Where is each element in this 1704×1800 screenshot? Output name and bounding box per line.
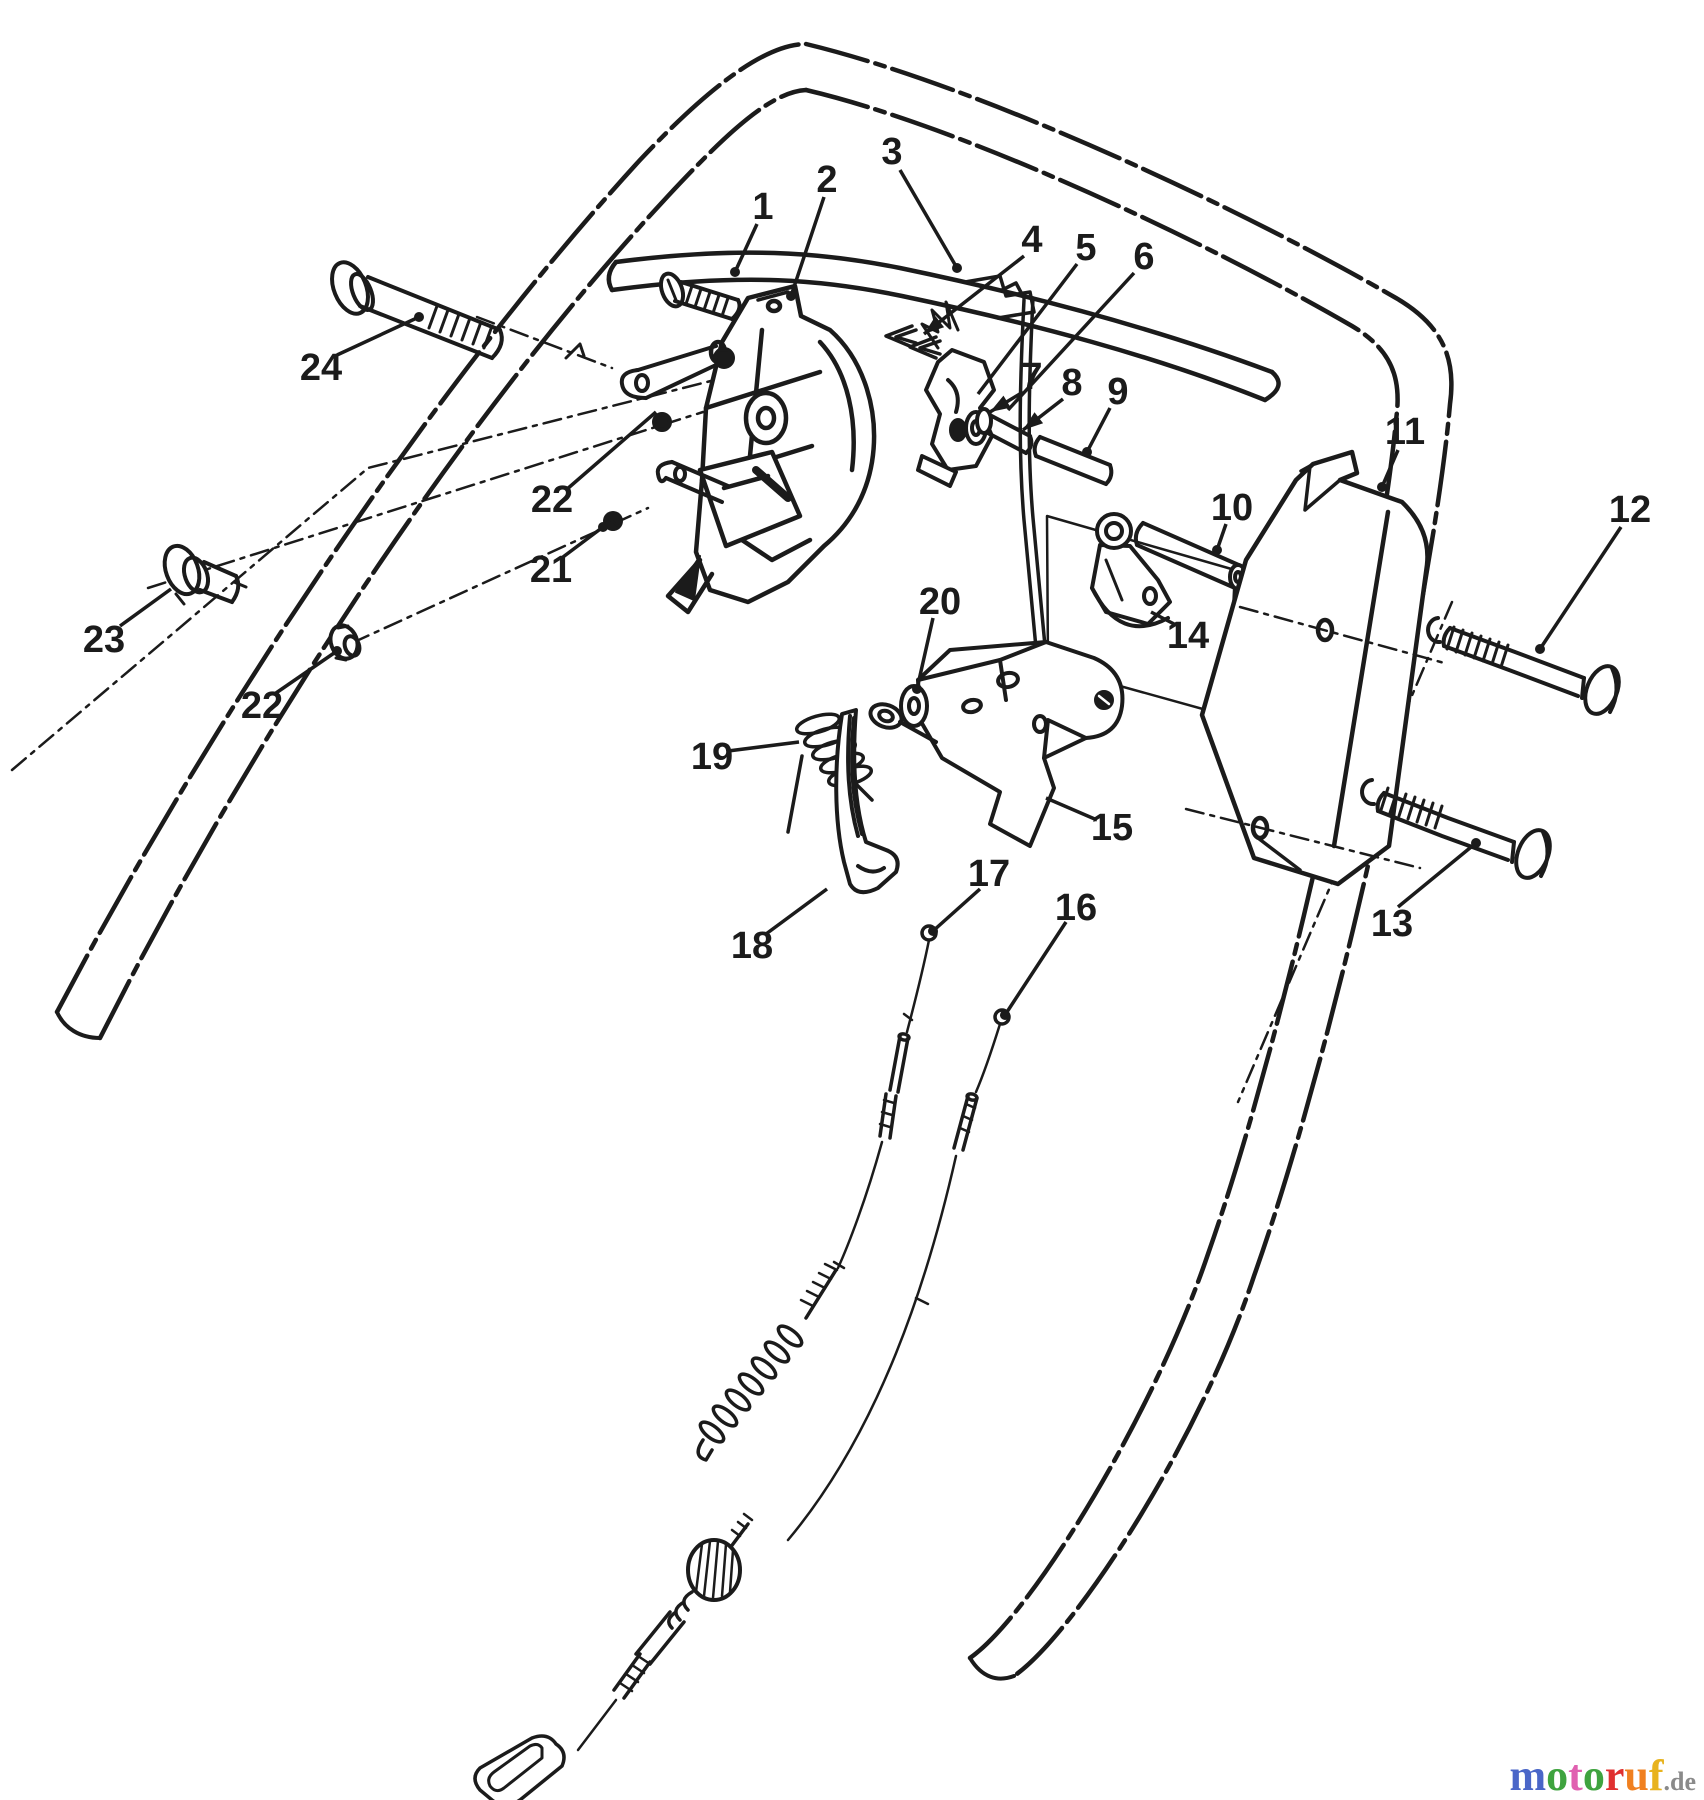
leader-line xyxy=(1398,843,1476,907)
watermark-letter: u xyxy=(1624,1751,1648,1800)
brake-link-rod xyxy=(1002,283,1054,660)
watermark-letter: t xyxy=(1568,1751,1583,1800)
leader-dot xyxy=(730,267,740,277)
part-number-text: 7 xyxy=(1021,356,1042,398)
part-number-text: 9 xyxy=(1107,371,1128,413)
part-label-22b: 22 xyxy=(241,646,342,727)
bushing-part23 xyxy=(158,541,246,604)
handle-tube-ends xyxy=(57,344,1014,1679)
watermark-letter: o xyxy=(1583,1751,1605,1800)
part-label-15: 15 xyxy=(1046,798,1133,849)
part-number-text: 8 xyxy=(1061,362,1082,404)
leader-dot xyxy=(928,926,938,936)
part-label-18: 18 xyxy=(731,889,827,967)
watermark-suffix: .de xyxy=(1664,1767,1697,1796)
part-label-12: 12 xyxy=(1535,489,1651,654)
part-label-11: 11 xyxy=(1377,411,1425,492)
leader-line xyxy=(735,224,757,272)
part-number-text: 6 xyxy=(1133,236,1154,278)
leader-dot xyxy=(1082,447,1092,457)
part-label-22a: 22 xyxy=(531,412,656,521)
watermark-letter: o xyxy=(1546,1751,1568,1800)
part-label-1: 1 xyxy=(730,186,774,277)
part-number-text: 23 xyxy=(83,619,125,661)
part-label-16: 16 xyxy=(1000,887,1097,1020)
throttle-cable-part16 xyxy=(475,1010,1009,1800)
part-number-text: 1 xyxy=(752,186,773,228)
leader-line xyxy=(276,651,337,693)
part-number-text: 24 xyxy=(300,347,342,389)
leader-dot xyxy=(414,312,424,322)
part-number-text: 22 xyxy=(241,685,283,727)
leader-dot xyxy=(1535,644,1545,654)
handle-tube-phantom xyxy=(57,44,1451,1676)
leader-line xyxy=(900,170,957,268)
brake-cable-part17 xyxy=(697,926,936,1460)
control-housing-part2 xyxy=(668,286,874,612)
part-number-text: 18 xyxy=(731,925,773,967)
part-number-text: 13 xyxy=(1371,903,1413,945)
part-number-text: 17 xyxy=(968,853,1010,895)
part-label-17: 17 xyxy=(928,853,1010,936)
part-label-3: 3 xyxy=(881,131,962,273)
leader-dot xyxy=(952,263,962,273)
part-number-text: 19 xyxy=(691,736,733,778)
leader-dot xyxy=(786,291,796,301)
part-number-text: 20 xyxy=(919,581,961,623)
part-number-text: 14 xyxy=(1167,615,1209,657)
part-number-text: 2 xyxy=(816,159,837,201)
part-number-text: 21 xyxy=(530,549,572,591)
carriage-bolt-part24 xyxy=(325,257,502,358)
parts-diagram-page: 1234567891011121314151617181920212222232… xyxy=(0,0,1704,1800)
leader-dot xyxy=(1471,838,1481,848)
leader-line xyxy=(766,889,827,934)
leader-line xyxy=(1005,922,1066,1015)
leader-line xyxy=(337,317,419,355)
leader-line xyxy=(1046,798,1097,820)
part-label-21: 21 xyxy=(530,522,608,591)
watermark-letter: f xyxy=(1649,1751,1664,1800)
part-number-text: 15 xyxy=(1091,807,1133,849)
part-label-10: 10 xyxy=(1211,487,1253,555)
leader-line xyxy=(728,742,799,751)
leader-dot xyxy=(1212,545,1222,555)
part-number-text: 11 xyxy=(1385,411,1425,453)
leader-line xyxy=(1087,408,1110,452)
part-label-23: 23 xyxy=(83,589,171,661)
leader-line xyxy=(933,889,980,931)
bolt-part12 xyxy=(1428,618,1625,719)
watermark-letter: r xyxy=(1605,1751,1625,1800)
part-label-19: 19 xyxy=(691,736,799,778)
leader-dot xyxy=(1000,1010,1010,1020)
leader-line xyxy=(1540,527,1621,649)
leader-dot xyxy=(598,522,608,532)
watermark-letters: motoruf xyxy=(1510,1751,1664,1800)
part-number-text: 5 xyxy=(1075,227,1096,269)
part-label-24: 24 xyxy=(300,312,424,389)
leader-line xyxy=(566,412,656,490)
leader-dot xyxy=(1377,482,1387,492)
pin-part9 xyxy=(1035,437,1112,484)
part-label-13: 13 xyxy=(1371,838,1481,945)
part-label-9: 9 xyxy=(1082,371,1129,457)
part-number-text: 4 xyxy=(1021,219,1042,261)
exploded-parts-diagram: 1234567891011121314151617181920212222232… xyxy=(0,0,1704,1800)
part-number-text: 16 xyxy=(1055,887,1097,929)
watermark-letter: m xyxy=(1510,1751,1547,1800)
part-label-14: 14 xyxy=(1151,612,1209,657)
part-number-text: 3 xyxy=(881,131,902,173)
watermark-logo: motoruf.de xyxy=(1510,1754,1696,1798)
part-number-text: 10 xyxy=(1211,487,1253,529)
trigger-lever-part18 xyxy=(836,700,936,892)
part-number-text: 22 xyxy=(531,479,573,521)
part-number-text: 12 xyxy=(1609,489,1651,531)
leader-dot xyxy=(332,646,342,656)
leader-line xyxy=(120,589,171,626)
leader-dot xyxy=(912,684,922,694)
